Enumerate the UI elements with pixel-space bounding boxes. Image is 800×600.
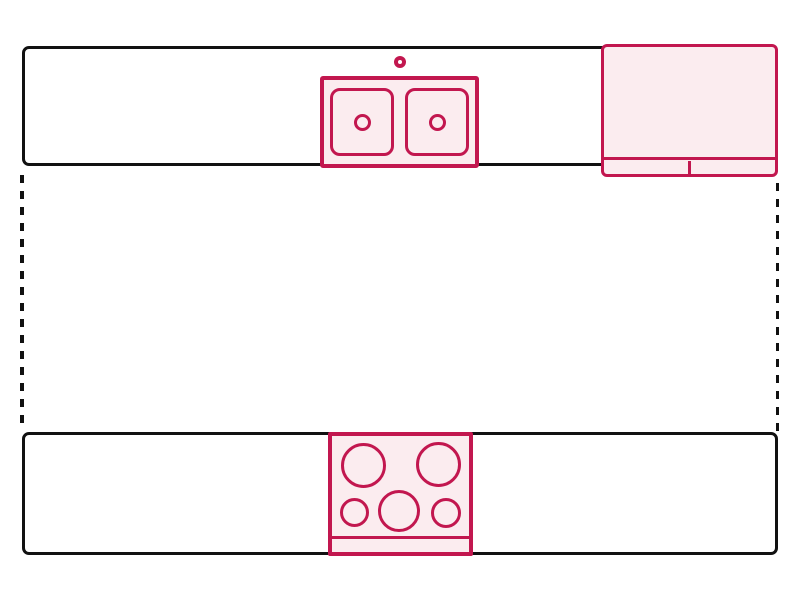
burner-small-left [340, 498, 369, 527]
open-side-dashed-line-left [20, 175, 24, 431]
burner-medium-center [378, 490, 420, 532]
refrigerator[interactable] [601, 44, 778, 177]
drain-icon [354, 114, 371, 131]
burner-small-right [431, 498, 461, 528]
burner-large-right [416, 442, 461, 487]
five-burner-cooktop[interactable] [328, 432, 473, 556]
open-side-dashed-line-right [776, 183, 780, 431]
burner-large-left [341, 443, 386, 488]
cooktop-control-strip [332, 536, 469, 552]
kitchen-floorplan-canvas [0, 0, 800, 600]
faucet-icon [394, 56, 406, 68]
drain-icon [429, 114, 446, 131]
refrigerator-door-divider [688, 161, 691, 174]
faucet-hole [398, 60, 402, 64]
sink-basin-right [405, 88, 469, 156]
sink-basin-left [330, 88, 394, 156]
double-basin-sink[interactable] [320, 76, 479, 168]
